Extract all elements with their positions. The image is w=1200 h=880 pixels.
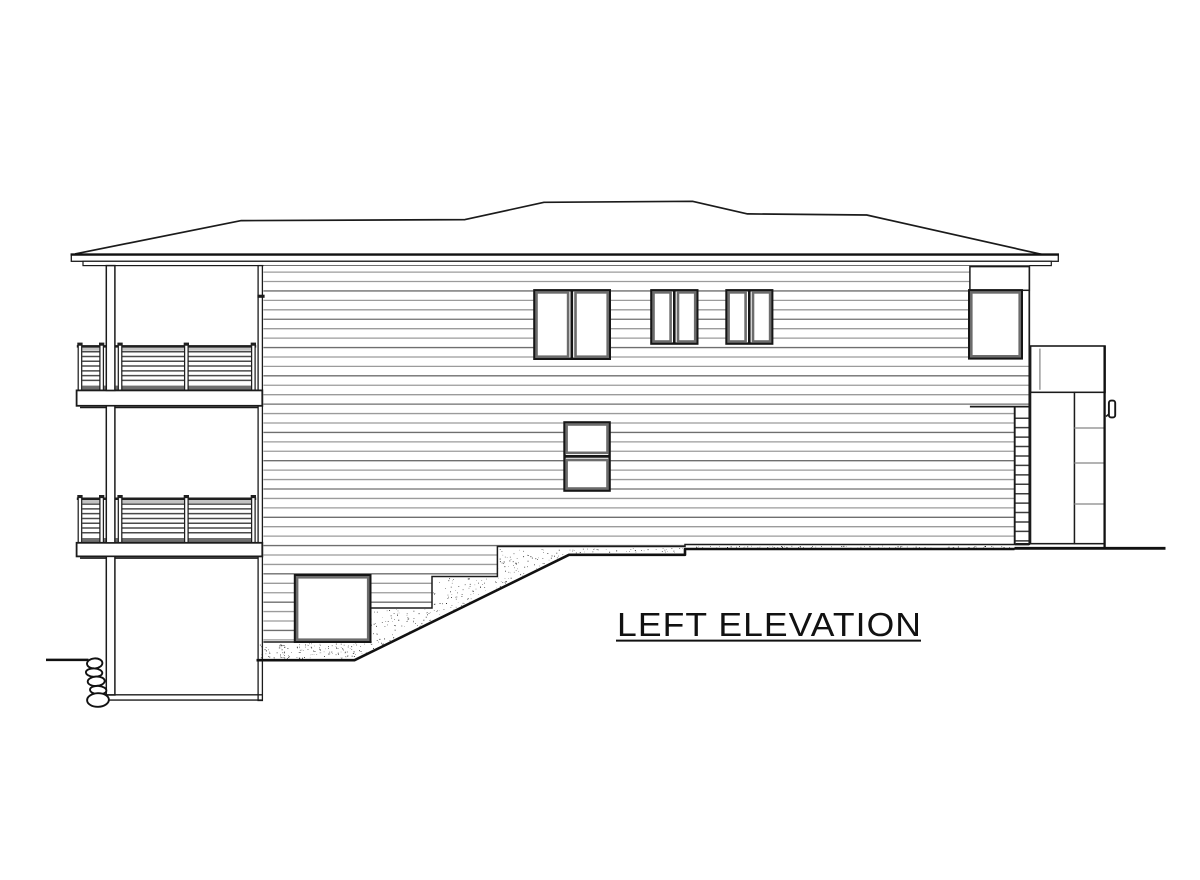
svg-text:LEFT ELEVATION: LEFT ELEVATION xyxy=(617,607,922,644)
